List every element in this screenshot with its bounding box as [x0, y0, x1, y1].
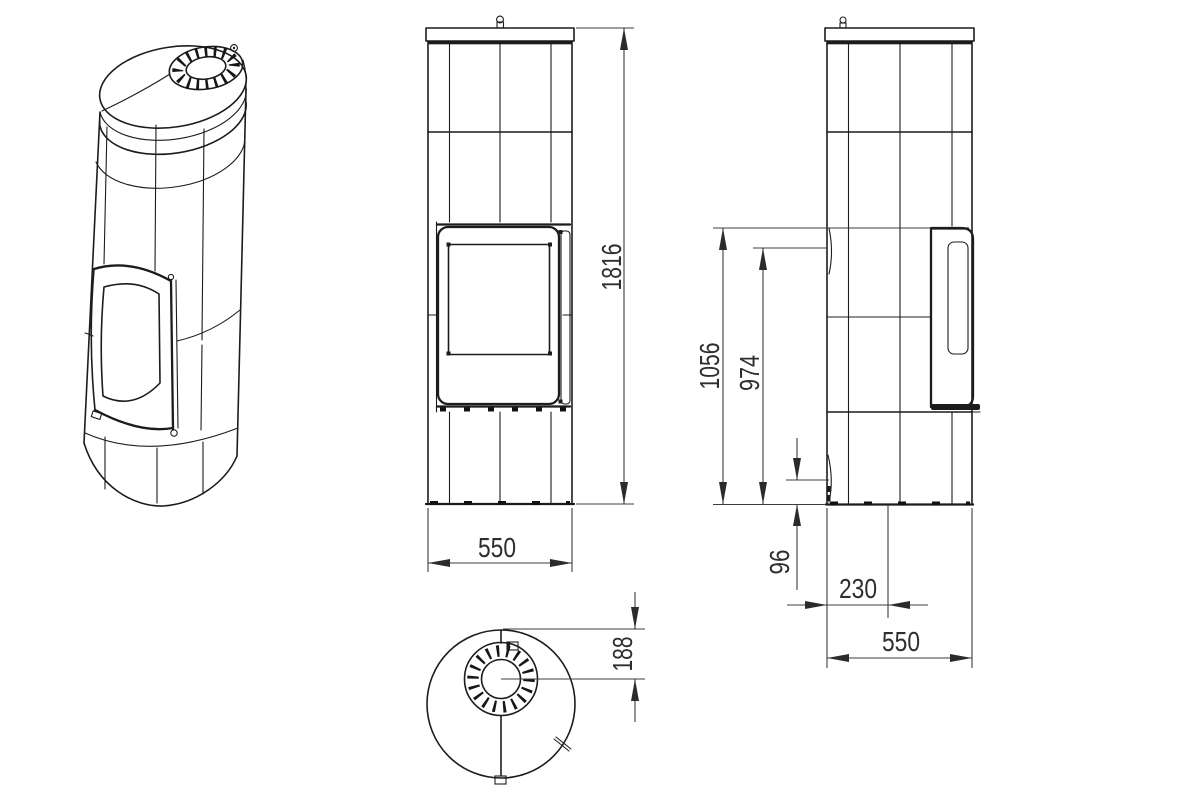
- front-door-frame: [438, 227, 559, 404]
- side-door-front-sliver: [829, 228, 832, 274]
- side-tile-joints: [827, 44, 972, 503]
- front-view: [426, 16, 574, 504]
- iso-cap-top: [94, 36, 253, 138]
- iso-door-bottom-edge: [95, 410, 173, 429]
- front-door: [437, 225, 570, 410]
- dim-door-top-height: 1056: [694, 228, 931, 505]
- side-door-ledge: [931, 404, 980, 410]
- side-ash-lip: [828, 455, 831, 502]
- iso-cap-seam-left: [102, 74, 170, 111]
- side-view: [825, 17, 980, 505]
- top-view: [427, 630, 575, 784]
- dim-label-overall-height: 1816: [596, 244, 627, 291]
- iso-cap-rim: [100, 88, 246, 140]
- dim-label-front-width: 550: [478, 532, 516, 563]
- dim-glass-top-height: 974: [734, 248, 828, 504]
- dim-door-bottom-height: 96: [764, 438, 829, 590]
- dim-label-door-top-height: 1056: [694, 343, 725, 390]
- side-top-cap: [825, 28, 974, 41]
- iso-handle-knob: [171, 430, 177, 436]
- iso-door-top-edge: [94, 265, 171, 281]
- iso-body-left-edge: [84, 112, 100, 443]
- iso-door: [91, 265, 178, 436]
- dim-label-side-depth: 550: [882, 626, 920, 657]
- front-tile-joints: [428, 44, 572, 503]
- iso-tile-joints: [85, 125, 245, 503]
- iso-door-handle-bar: [171, 281, 173, 429]
- dim-label-flue-center-offset: 230: [839, 573, 877, 604]
- side-air-knob: [840, 17, 846, 28]
- drawing-canvas: 1816 550 188 1056: [0, 0, 1200, 800]
- front-door-hinge-strip: [561, 231, 570, 404]
- dim-label-door-bottom-height: 96: [764, 550, 795, 575]
- dim-front-width: 550: [428, 508, 572, 572]
- front-door-glass: [449, 245, 550, 355]
- side-door: [930, 228, 980, 412]
- iso-door-glass: [101, 284, 160, 401]
- iso-bottom-rim: [84, 443, 237, 506]
- side-door-profile: [931, 228, 973, 407]
- dim-label-top-flue-offset: 188: [607, 637, 638, 672]
- front-top-cap: [426, 28, 574, 41]
- side-door-handle: [948, 242, 968, 354]
- stove-technical-drawing: 1816 550 188 1056: [0, 0, 1200, 800]
- front-chimney-knob: [497, 16, 504, 28]
- dim-top-flue-offset: 188: [501, 592, 645, 722]
- dim-label-glass-top-height: 974: [734, 355, 765, 391]
- isometric-view: [84, 36, 252, 506]
- iso-door-left-edge: [91, 269, 95, 410]
- iso-vent-ring: [166, 41, 246, 94]
- dim-overall-height: 1816: [576, 28, 634, 504]
